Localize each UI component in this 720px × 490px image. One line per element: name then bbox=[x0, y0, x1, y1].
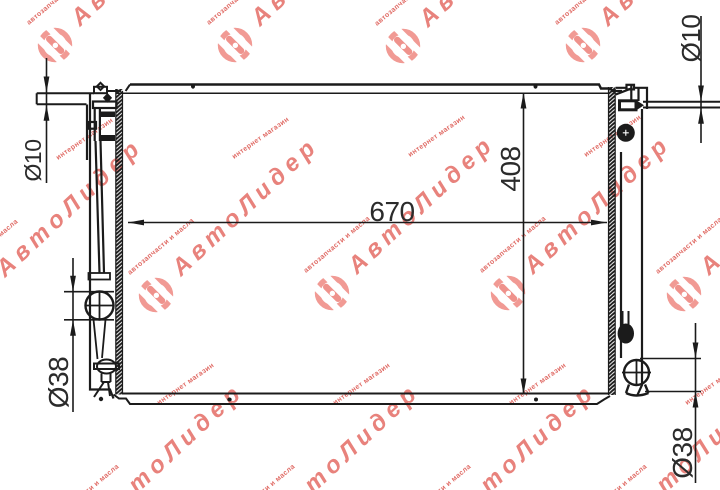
svg-text:Ø10: Ø10 bbox=[676, 15, 706, 63]
svg-text:Ø38: Ø38 bbox=[667, 427, 698, 478]
svg-text:670: 670 bbox=[369, 196, 414, 227]
svg-text:Ø38: Ø38 bbox=[43, 357, 74, 408]
svg-text:408: 408 bbox=[495, 146, 526, 191]
svg-text:Ø10: Ø10 bbox=[20, 140, 46, 182]
